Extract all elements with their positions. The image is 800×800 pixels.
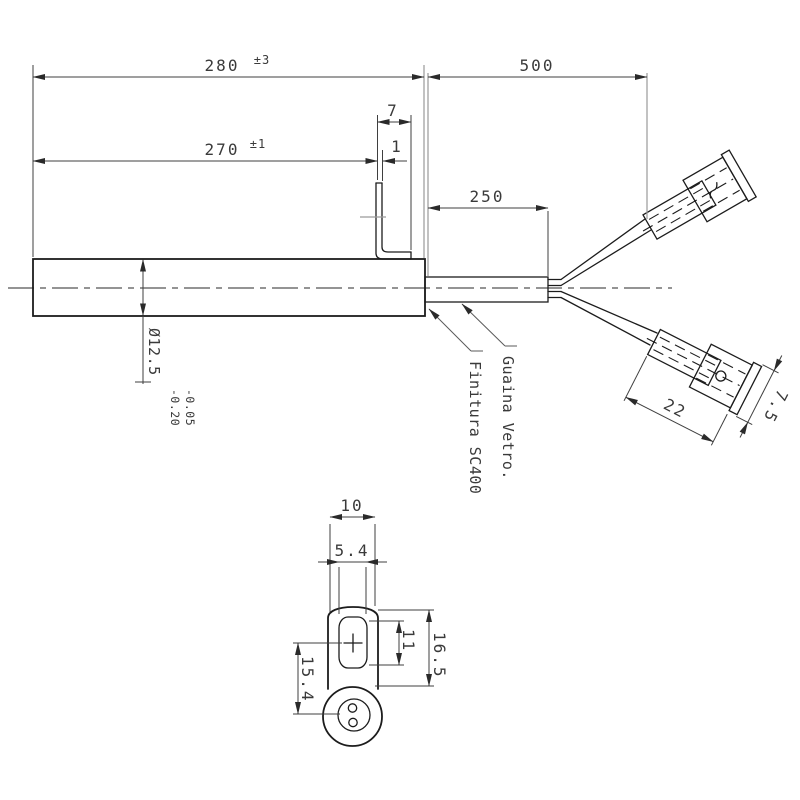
dim-overall-length-value: 280	[205, 56, 240, 75]
dim-lead-length: 500	[428, 56, 647, 276]
pin-hole-top	[348, 704, 356, 712]
glass-sheath	[425, 277, 561, 302]
dim-bracket-thickness: 1	[383, 137, 408, 181]
main-view: 22 7.5 280 ±3 500	[8, 53, 800, 494]
dim-diameter-tol-upper: -0.05	[183, 389, 197, 426]
upper-terminal	[630, 150, 757, 254]
dim-terminal-width-value: 7.5	[759, 387, 792, 427]
dim-body-width-value: 10	[340, 496, 363, 515]
dim-pin-offset-value: 15.4	[298, 656, 317, 703]
lower-terminal-cap	[729, 362, 762, 414]
mounting-bracket	[360, 183, 411, 259]
lower-terminal-body	[689, 344, 752, 408]
dim-slot-height-value: 11	[399, 629, 418, 652]
upper-terminal-cap	[721, 150, 756, 201]
sheath-label: Guaina Vetro.	[499, 356, 517, 480]
dim-diameter-value: Ø12.5	[145, 328, 163, 376]
end-view: 10 5.4 11 16.5	[293, 496, 449, 746]
dim-diameter: Ø12.5 -0.05 -0.20	[135, 260, 197, 427]
heater-body	[33, 259, 425, 316]
dim-body-height-value: 16.5	[430, 632, 449, 679]
endview-slot	[339, 617, 367, 668]
lead-wires	[561, 219, 657, 345]
dim-sheath-length-value: 250	[470, 187, 505, 206]
terminal-dimple	[714, 369, 727, 382]
leader-finish: Finitura SC400	[429, 309, 484, 494]
endview-circle	[323, 687, 382, 746]
dim-slot-height: 11	[369, 621, 418, 665]
dim-overall-length-tol: ±3	[254, 53, 270, 67]
lower-terminal: 22 7.5	[617, 297, 800, 467]
dim-slot-width-value: 5.4	[335, 541, 370, 560]
dim-bracket-length-value: 7	[387, 101, 399, 120]
dim-diameter-tol-lower: -0.20	[168, 389, 182, 426]
dim-heated-length: 270 ±1	[33, 137, 378, 161]
dim-terminal-width: 7.5	[728, 350, 800, 450]
dim-pin-offset: 15.4	[293, 643, 342, 714]
dim-lead-length-value: 500	[520, 56, 555, 75]
dim-terminal-length-value: 22	[661, 395, 690, 422]
technical-drawing-sheet: 22 7.5 280 ±3 500	[0, 0, 800, 800]
dim-bracket-thickness-value: 1	[391, 137, 403, 156]
dim-heated-length-value: 270	[205, 140, 240, 159]
dim-sheath-length: 250	[428, 187, 548, 276]
outer-circle	[323, 687, 382, 746]
pin-hole-bottom	[349, 718, 357, 726]
finish-label: Finitura SC400	[466, 361, 484, 494]
dim-slot-width: 5.4	[318, 541, 387, 614]
technical-drawing: 22 7.5 280 ±3 500	[0, 0, 800, 800]
dim-heated-length-tol: ±1	[250, 137, 266, 151]
